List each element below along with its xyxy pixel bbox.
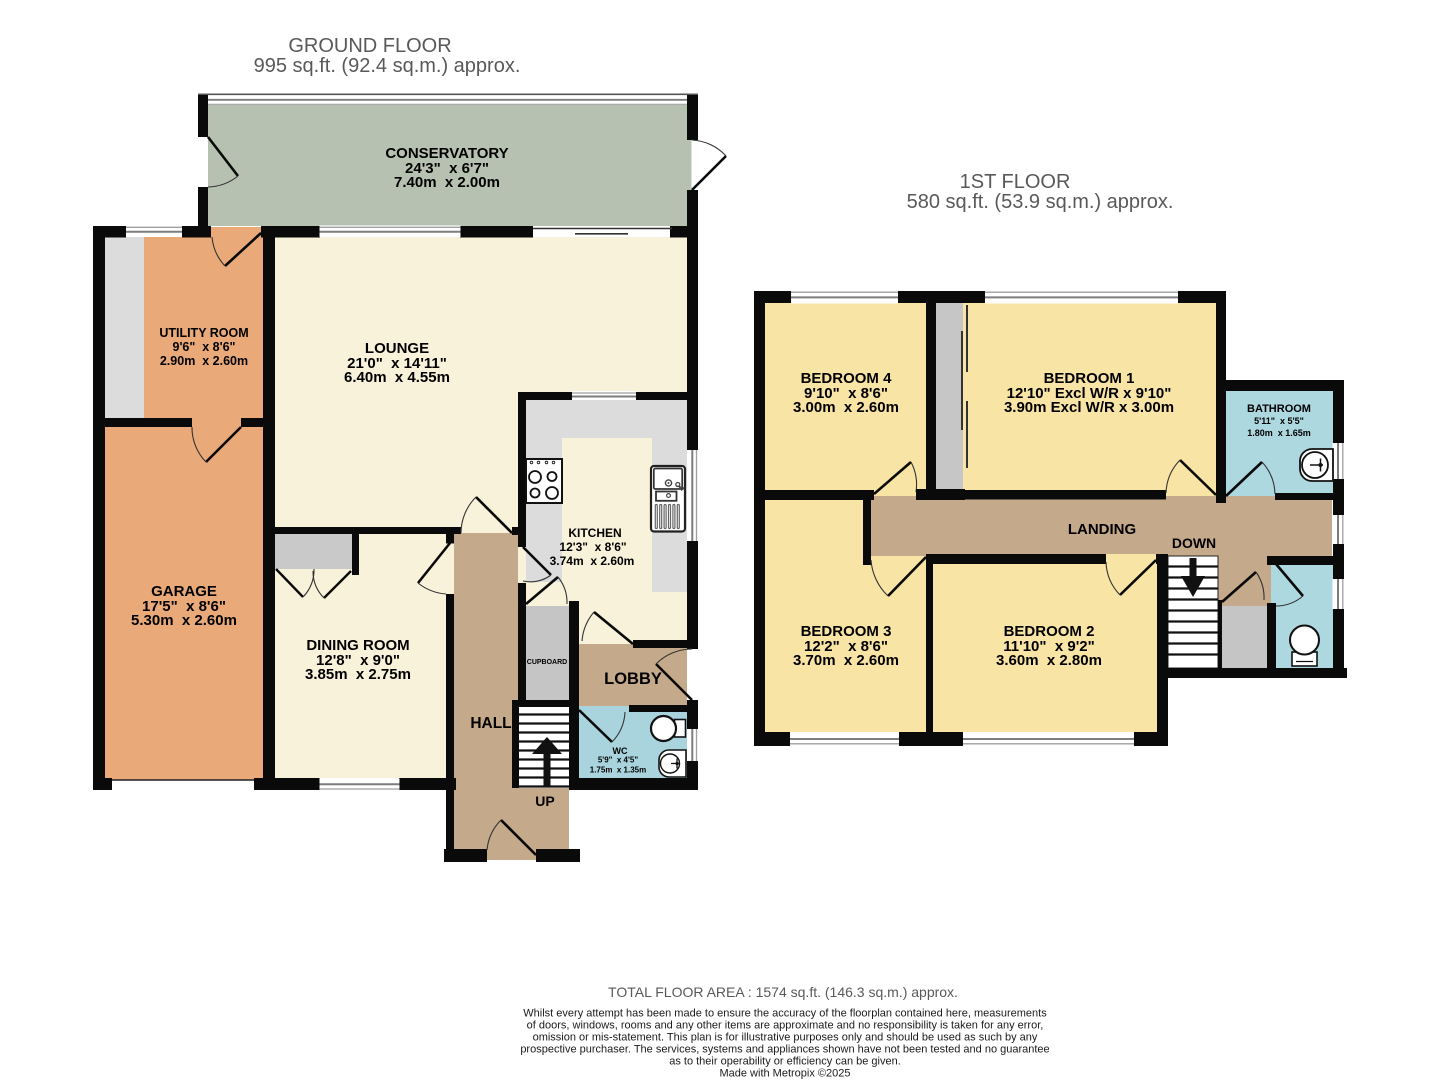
svg-text:3.85m x 2.75m: 3.85m x 2.75m (305, 666, 411, 683)
svg-text:Made with Metropix ©2025: Made with Metropix ©2025 (719, 1068, 850, 1080)
svg-text:DOWN: DOWN (1172, 535, 1216, 551)
svg-text:UTILITY ROOM: UTILITY ROOM (159, 326, 248, 340)
svg-text:Whilst every attempt has been: Whilst every attempt has been made to en… (523, 1008, 1047, 1020)
svg-text:HALL: HALL (470, 715, 511, 732)
svg-text:3.90m Excl W/R x 3.00m: 3.90m Excl W/R x 3.00m (1004, 399, 1174, 416)
svg-text:omission or mis-statement. Thi: omission or mis-statement. This plan is … (533, 1032, 1038, 1044)
svg-text:LANDING: LANDING (1068, 521, 1136, 538)
svg-text:LOBBY: LOBBY (604, 670, 662, 688)
svg-text:GROUND FLOOR: GROUND FLOOR (288, 35, 451, 57)
svg-text:3.60m x 2.80m: 3.60m x 2.80m (996, 652, 1102, 669)
svg-text:TOTAL FLOOR AREA : 1574 sq.ft.: TOTAL FLOOR AREA : 1574 sq.ft. (146.3 sq… (608, 984, 958, 1000)
svg-text:2.90m x 2.60m: 2.90m x 2.60m (160, 354, 248, 368)
svg-text:1ST FLOOR: 1ST FLOOR (960, 171, 1071, 193)
svg-text:9'6" x 8'6": 9'6" x 8'6" (173, 340, 236, 354)
svg-text:1.75m x 1.35m: 1.75m x 1.35m (590, 766, 646, 775)
svg-text:prospective purchaser. The ser: prospective purchaser. The services, sys… (520, 1044, 1049, 1056)
svg-text:5'9" x 4'5": 5'9" x 4'5" (598, 756, 639, 765)
svg-text:KITCHEN: KITCHEN (568, 526, 621, 540)
svg-text:5.30m x 2.60m: 5.30m x 2.60m (131, 612, 237, 629)
svg-text:UP: UP (535, 793, 554, 809)
svg-text:12'3" x 8'6": 12'3" x 8'6" (559, 540, 626, 554)
svg-text:CUPBOARD: CUPBOARD (527, 659, 567, 666)
svg-text:WC: WC (613, 746, 628, 756)
svg-text:1.80m x 1.65m: 1.80m x 1.65m (1247, 428, 1311, 438)
svg-text:3.00m x 2.60m: 3.00m x 2.60m (793, 399, 899, 416)
svg-text:995 sq.ft. (92.4 sq.m.) approx: 995 sq.ft. (92.4 sq.m.) approx. (254, 55, 521, 77)
svg-text:580 sq.ft. (53.9 sq.m.) approx: 580 sq.ft. (53.9 sq.m.) approx. (907, 191, 1174, 213)
svg-text:5'11" x 5'5": 5'11" x 5'5" (1254, 416, 1304, 426)
svg-text:as to their operability or eff: as to their operability or efficiency ca… (669, 1056, 901, 1068)
svg-text:of doors, windows, rooms and a: of doors, windows, rooms and any other i… (527, 1020, 1044, 1032)
svg-text:6.40m x 4.55m: 6.40m x 4.55m (344, 369, 450, 386)
svg-text:3.70m x 2.60m: 3.70m x 2.60m (793, 652, 899, 669)
svg-text:7.40m x 2.00m: 7.40m x 2.00m (394, 174, 500, 191)
svg-text:BATHROOM: BATHROOM (1247, 403, 1311, 415)
svg-text:3.74m x 2.60m: 3.74m x 2.60m (550, 554, 635, 568)
